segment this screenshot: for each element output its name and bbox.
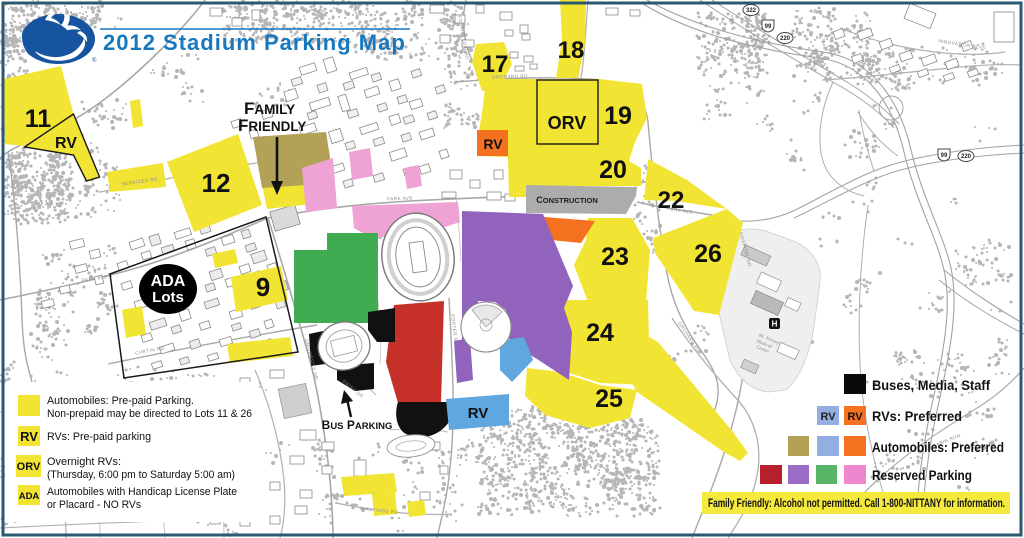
- svg-text:23: 23: [601, 243, 629, 271]
- svg-text:12: 12: [202, 168, 231, 198]
- svg-text:CONSTRUCTION: CONSTRUCTION: [536, 195, 598, 205]
- svg-text:Buses, Media, Staff: Buses, Media, Staff: [872, 378, 990, 393]
- svg-text:Reserved Parking: Reserved Parking: [872, 468, 972, 483]
- svg-text:220: 220: [780, 36, 791, 42]
- svg-text:Automobiles: Preferred: Automobiles: Preferred: [872, 440, 1004, 455]
- svg-text:220: 220: [961, 154, 972, 160]
- svg-text:RV: RV: [483, 136, 503, 152]
- svg-text:H: H: [772, 320, 778, 329]
- svg-text:18: 18: [558, 37, 585, 64]
- svg-text:25: 25: [595, 385, 623, 413]
- svg-text:19: 19: [604, 102, 632, 130]
- svg-text:Overnight RVs:: Overnight RVs:: [47, 456, 121, 468]
- svg-text:24: 24: [586, 319, 614, 347]
- svg-text:2012 Stadium Parking Map: 2012 Stadium Parking Map: [103, 30, 406, 55]
- svg-text:11: 11: [25, 105, 52, 133]
- svg-text:9: 9: [256, 272, 270, 302]
- svg-text:Non-prepaid may be directed to: Non-prepaid may be directed to Lots 11 &…: [47, 408, 252, 420]
- svg-text:Automobiles: Pre-paid Parking: Automobiles: Pre-paid Parking.: [47, 395, 194, 407]
- svg-text:99: 99: [941, 153, 948, 159]
- svg-text:ADA: ADA: [19, 491, 40, 502]
- svg-text:Lots: Lots: [152, 289, 184, 306]
- svg-text:®: ®: [92, 57, 97, 64]
- svg-text:99: 99: [765, 24, 772, 30]
- svg-text:RV: RV: [820, 411, 836, 423]
- svg-text:RVs: Pre-paid parking: RVs: Pre-paid parking: [47, 431, 151, 443]
- svg-text:322: 322: [746, 8, 757, 14]
- svg-text:FRIENDLY: FRIENDLY: [238, 116, 306, 135]
- svg-text:Automobiles with Handicap Lice: Automobiles with Handicap License Plate: [47, 486, 237, 498]
- svg-text:ORV: ORV: [548, 113, 587, 133]
- svg-text:FAMILY: FAMILY: [244, 99, 295, 118]
- svg-text:RV: RV: [468, 405, 489, 422]
- svg-text:(Thursday, 6:00 pm to Saturday: (Thursday, 6:00 pm to Saturday 5:00 am): [47, 469, 235, 481]
- svg-text:RV: RV: [847, 411, 863, 423]
- svg-text:20: 20: [599, 156, 627, 184]
- svg-text:RV: RV: [55, 135, 77, 152]
- svg-text:ADA: ADA: [151, 273, 186, 290]
- svg-text:BUS PARKING: BUS PARKING: [322, 418, 393, 432]
- svg-text:ORV: ORV: [17, 461, 41, 473]
- svg-text:RV: RV: [20, 429, 38, 444]
- svg-text:26: 26: [694, 240, 722, 268]
- svg-text:Family Friendly: Alcohol not p: Family Friendly: Alcohol not permitted. …: [708, 498, 1005, 510]
- svg-text:PARK AVE: PARK AVE: [387, 196, 413, 202]
- svg-text:RVs: Preferred: RVs: Preferred: [872, 409, 962, 424]
- svg-text:or Placard - NO RVs: or Placard - NO RVs: [47, 499, 141, 511]
